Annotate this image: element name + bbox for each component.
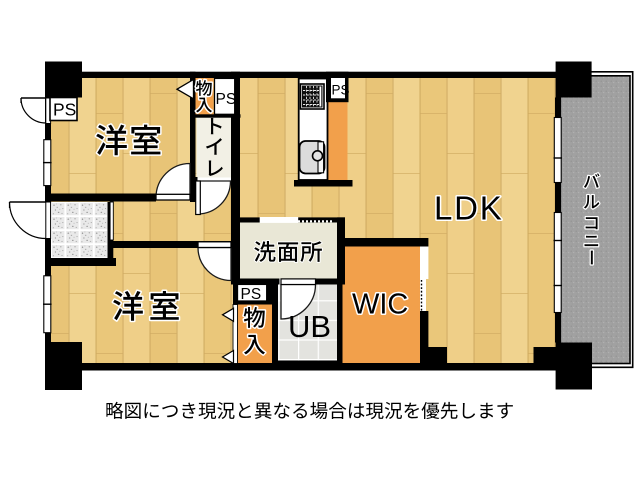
svg-text:PS: PS	[53, 100, 76, 120]
svg-text:PS: PS	[241, 286, 262, 303]
svg-text:PS: PS	[216, 91, 237, 108]
svg-text:LDK: LDK	[434, 190, 504, 227]
svg-text:UB: UB	[288, 309, 331, 344]
svg-text:WIC: WIC	[352, 289, 408, 321]
svg-text:PS: PS	[332, 83, 350, 98]
